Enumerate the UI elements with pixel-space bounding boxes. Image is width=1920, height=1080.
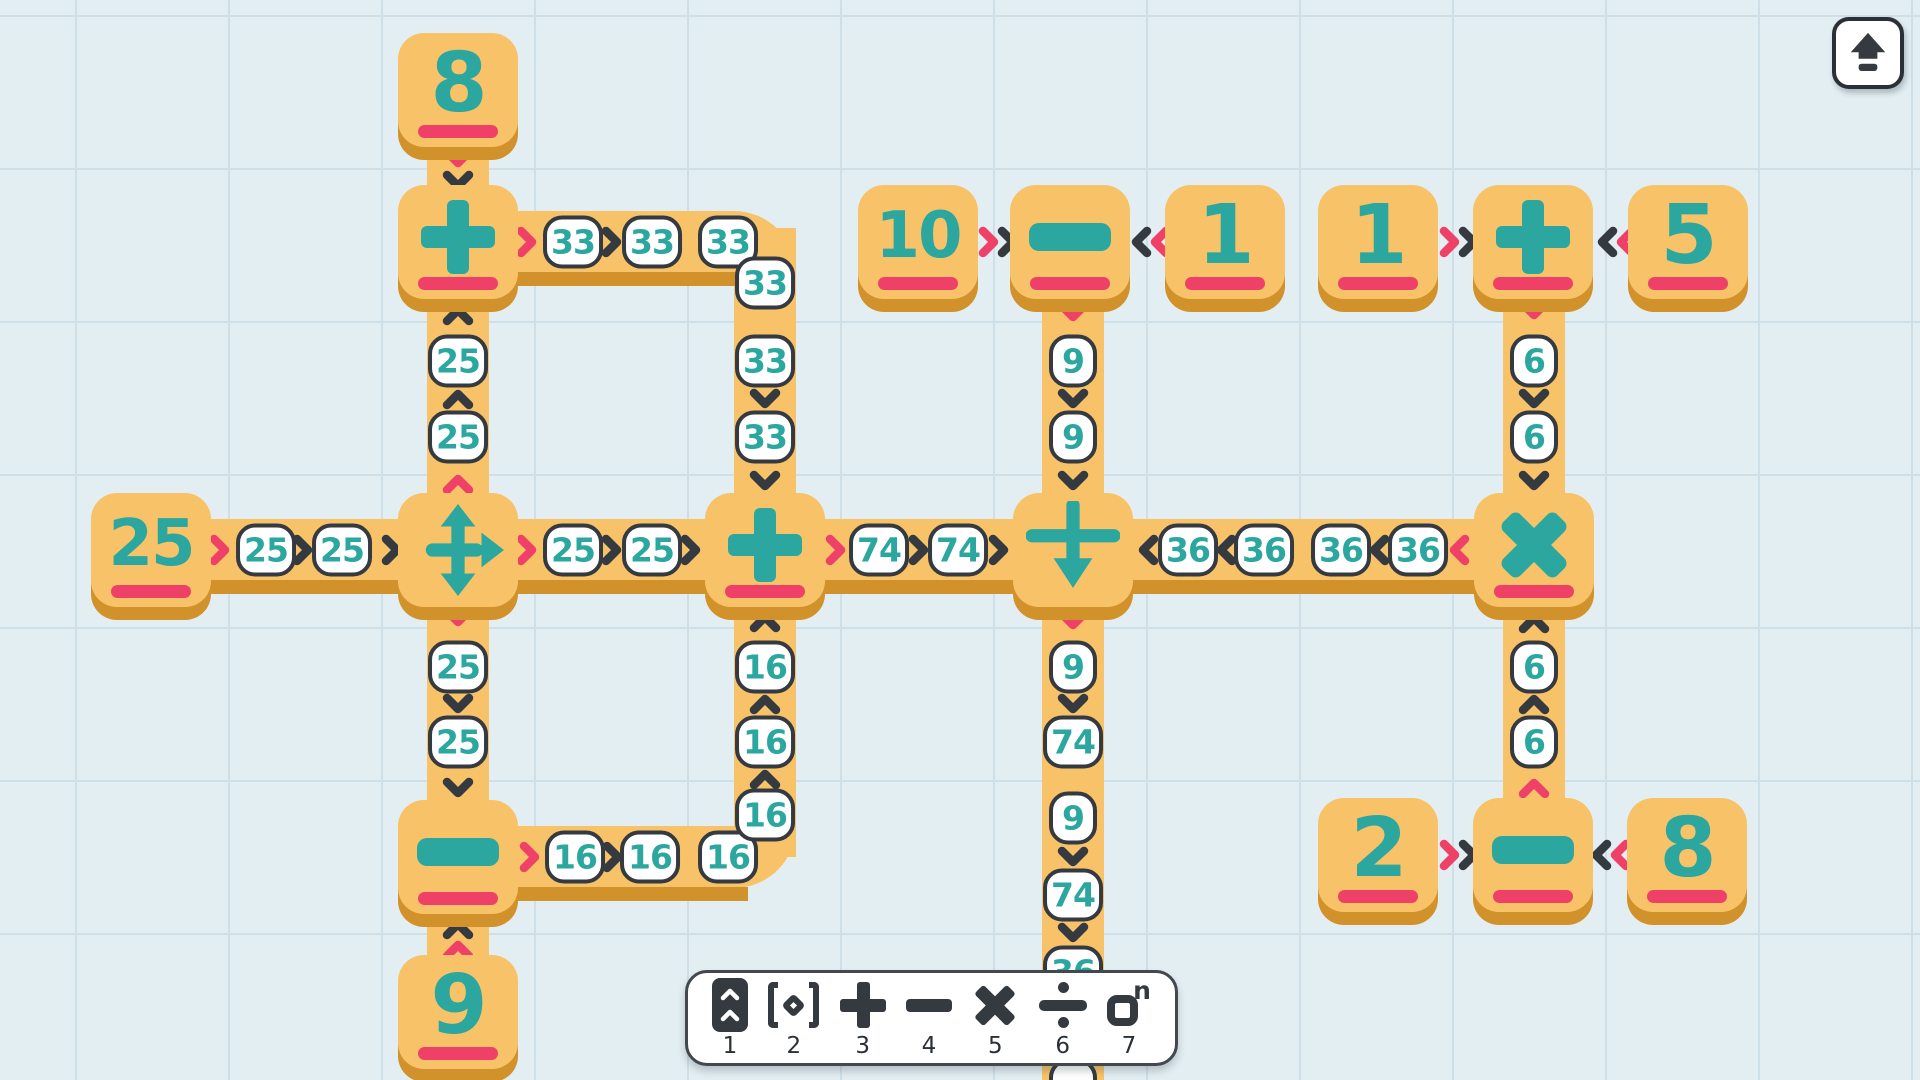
track-shadow: [482, 887, 748, 901]
tile-underline: [1494, 585, 1574, 598]
tile-value: 9: [430, 965, 485, 1059]
flow-chevron-u: [1517, 691, 1551, 717]
value-bubble: 33: [735, 335, 795, 388]
value-bubble: 6: [1510, 411, 1558, 464]
tile-underline: [1185, 277, 1265, 290]
toolbar-item-1[interactable]: 1: [712, 979, 748, 1059]
tile-operator-minus-top[interactable]: [1010, 185, 1130, 299]
tile-value: 10: [875, 204, 960, 280]
flow-chevron-d: [1056, 920, 1090, 946]
merge-down-icon: [1026, 501, 1120, 599]
flow-chevron-d: [441, 691, 475, 717]
tile-underline: [1030, 277, 1110, 290]
flow-chevron-u: [1517, 610, 1551, 636]
flow-chevron-d: [441, 775, 475, 801]
tile-number-2[interactable]: 2: [1318, 798, 1438, 912]
tile-number-9-bottom[interactable]: 9: [398, 955, 518, 1069]
plus-icon: [728, 508, 802, 592]
tile-value: 1: [1197, 195, 1252, 289]
flow-chevron-u: [748, 691, 782, 717]
tile-underline: [418, 892, 498, 905]
tile-number-1-right[interactable]: 1: [1318, 185, 1438, 299]
flow-chevron-d: [1056, 386, 1090, 412]
flow-chevron-d: [748, 468, 782, 494]
tile-underline: [878, 277, 958, 290]
add-icon: [840, 979, 886, 1031]
track-shadow: [151, 580, 1534, 594]
toolbar-item-label: 3: [855, 1033, 870, 1059]
value-bubble: 9: [1049, 641, 1097, 694]
flow-chevron-l: [1446, 533, 1472, 567]
tile-underline: [1647, 890, 1727, 903]
path-tool-icon: [712, 979, 748, 1031]
tile-underline: [1493, 890, 1573, 903]
flow-chevron-d: [1056, 607, 1090, 633]
tile-number-25-source[interactable]: 25: [91, 493, 211, 607]
value-bubble: 36: [1388, 524, 1448, 577]
value-bubble: 16: [735, 716, 795, 769]
tile-underline: [1493, 277, 1573, 290]
tile-number-5[interactable]: 5: [1628, 185, 1748, 299]
toolbar-item-label: 7: [1122, 1033, 1137, 1059]
value-bubble: 16: [735, 641, 795, 694]
toolbar-item-5[interactable]: 5: [972, 979, 1018, 1059]
value-bubble: 16: [545, 831, 605, 884]
value-bubble: 33: [543, 216, 603, 269]
minus-icon: [1029, 223, 1111, 261]
tile-value: 1: [1350, 195, 1405, 289]
toolbar-item-label: 6: [1055, 1033, 1070, 1059]
value-bubble: 36: [1234, 524, 1294, 577]
value-bubble: 25: [622, 524, 682, 577]
divide-icon: [1039, 979, 1087, 1031]
plus-icon: [1496, 200, 1570, 284]
tile-operator-minus-bottomright[interactable]: [1473, 798, 1593, 912]
toolbar-item-label: 2: [787, 1033, 802, 1059]
tile-underline: [1648, 277, 1728, 290]
track-shadow: [482, 272, 748, 286]
value-bubble: 6: [1510, 641, 1558, 694]
anchor-brackets-icon: [768, 979, 819, 1031]
tile-value: 5: [1660, 195, 1715, 289]
toolbar-item-7[interactable]: n7: [1107, 979, 1151, 1059]
tile-value: 25: [108, 512, 193, 588]
multiply-icon: [1495, 506, 1573, 594]
subtract-icon: [906, 979, 952, 1031]
tile-number-10[interactable]: 10: [858, 185, 978, 299]
splitter-arrows-icon: [411, 503, 505, 597]
flow-chevron-r: [986, 533, 1012, 567]
plus-icon: [421, 200, 495, 284]
value-bubble: 9: [1049, 335, 1097, 388]
tile-value: 2: [1350, 808, 1405, 902]
tile-number-1-left[interactable]: 1: [1165, 185, 1285, 299]
value-bubble: 9: [1049, 792, 1097, 845]
value-bubble: 74: [1043, 716, 1103, 769]
value-bubble: 25: [428, 335, 488, 388]
tile-number-8-bottom[interactable]: 8: [1627, 798, 1747, 912]
minus-icon: [1492, 836, 1574, 874]
value-bubble: 6: [1510, 335, 1558, 388]
value-bubble: 6: [1510, 716, 1558, 769]
flow-chevron-r: [517, 840, 543, 874]
value-bubble: 9: [1049, 411, 1097, 464]
tile-underline: [418, 125, 498, 138]
flow-chevron-u: [748, 609, 782, 635]
toolbar: 123456n7: [685, 970, 1178, 1066]
value-bubble: 74: [928, 524, 988, 577]
multiply-icon: [972, 979, 1018, 1031]
value-bubble: 25: [236, 524, 296, 577]
tile-underline: [418, 277, 498, 290]
flow-chevron-d: [441, 604, 475, 630]
flow-chevron-d: [1056, 691, 1090, 717]
toolbar-item-6[interactable]: 6: [1039, 979, 1087, 1059]
toolbar-item-label: 1: [723, 1033, 738, 1059]
tile-operator-plus-right[interactable]: [1473, 185, 1593, 299]
game-board: 2525252574743636363633333333333325252525…: [0, 0, 1920, 1080]
tile-underline: [418, 1047, 498, 1060]
flow-chevron-u: [441, 302, 475, 328]
tile-operator-minus-bottomleft[interactable]: [398, 800, 518, 914]
value-bubble: 36: [1311, 524, 1371, 577]
tile-underline: [725, 585, 805, 598]
tile-value: 8: [430, 43, 485, 137]
tile-junction-merge-down[interactable]: [1013, 493, 1133, 607]
tile-number-8-top[interactable]: 8: [398, 33, 518, 147]
eject-button[interactable]: [1832, 17, 1904, 89]
toolbar-item-3[interactable]: 3: [840, 979, 886, 1059]
tile-underline: [111, 585, 191, 598]
minus-icon: [417, 838, 499, 876]
value-bubble: 74: [849, 524, 909, 577]
tile-operator-plus-left[interactable]: [398, 185, 518, 299]
exponent-icon: n: [1107, 979, 1151, 1031]
tile-operator-times[interactable]: [1474, 493, 1594, 607]
flow-chevron-d: [748, 386, 782, 412]
value-bubble: 33: [622, 216, 682, 269]
toolbar-item-label: 4: [922, 1033, 937, 1059]
tile-value: 8: [1659, 808, 1714, 902]
value-bubble: 33: [735, 411, 795, 464]
value-bubble: 16: [620, 831, 680, 884]
value-bubble: 25: [428, 641, 488, 694]
tile-splitter[interactable]: [398, 493, 518, 607]
value-bubble: 25: [312, 524, 372, 577]
flow-chevron-d: [1056, 299, 1090, 325]
flow-chevron-d: [1517, 386, 1551, 412]
value-bubble: 74: [1043, 869, 1103, 922]
toolbar-item-label: 5: [988, 1033, 1003, 1059]
value-bubble: 16: [735, 789, 795, 842]
flow-chevron-d: [1056, 844, 1090, 870]
value-bubble: 25: [543, 524, 603, 577]
toolbar-item-2[interactable]: 2: [768, 979, 819, 1059]
flow-chevron-r: [823, 533, 849, 567]
flow-chevron-d: [1517, 297, 1551, 323]
flow-chevron-u: [441, 386, 475, 412]
tile-underline: [1338, 277, 1418, 290]
value-bubble: 25: [428, 716, 488, 769]
flow-chevron-d: [1517, 468, 1551, 494]
flow-chevron-d: [1056, 468, 1090, 494]
tile-underline: [1338, 890, 1418, 903]
value-bubble: 36: [1158, 524, 1218, 577]
value-bubble: 25: [428, 411, 488, 464]
toolbar-item-4[interactable]: 4: [906, 979, 952, 1059]
tile-operator-plus-center[interactable]: [705, 493, 825, 607]
value-bubble: 33: [735, 257, 795, 310]
eject-icon: [1845, 30, 1891, 76]
